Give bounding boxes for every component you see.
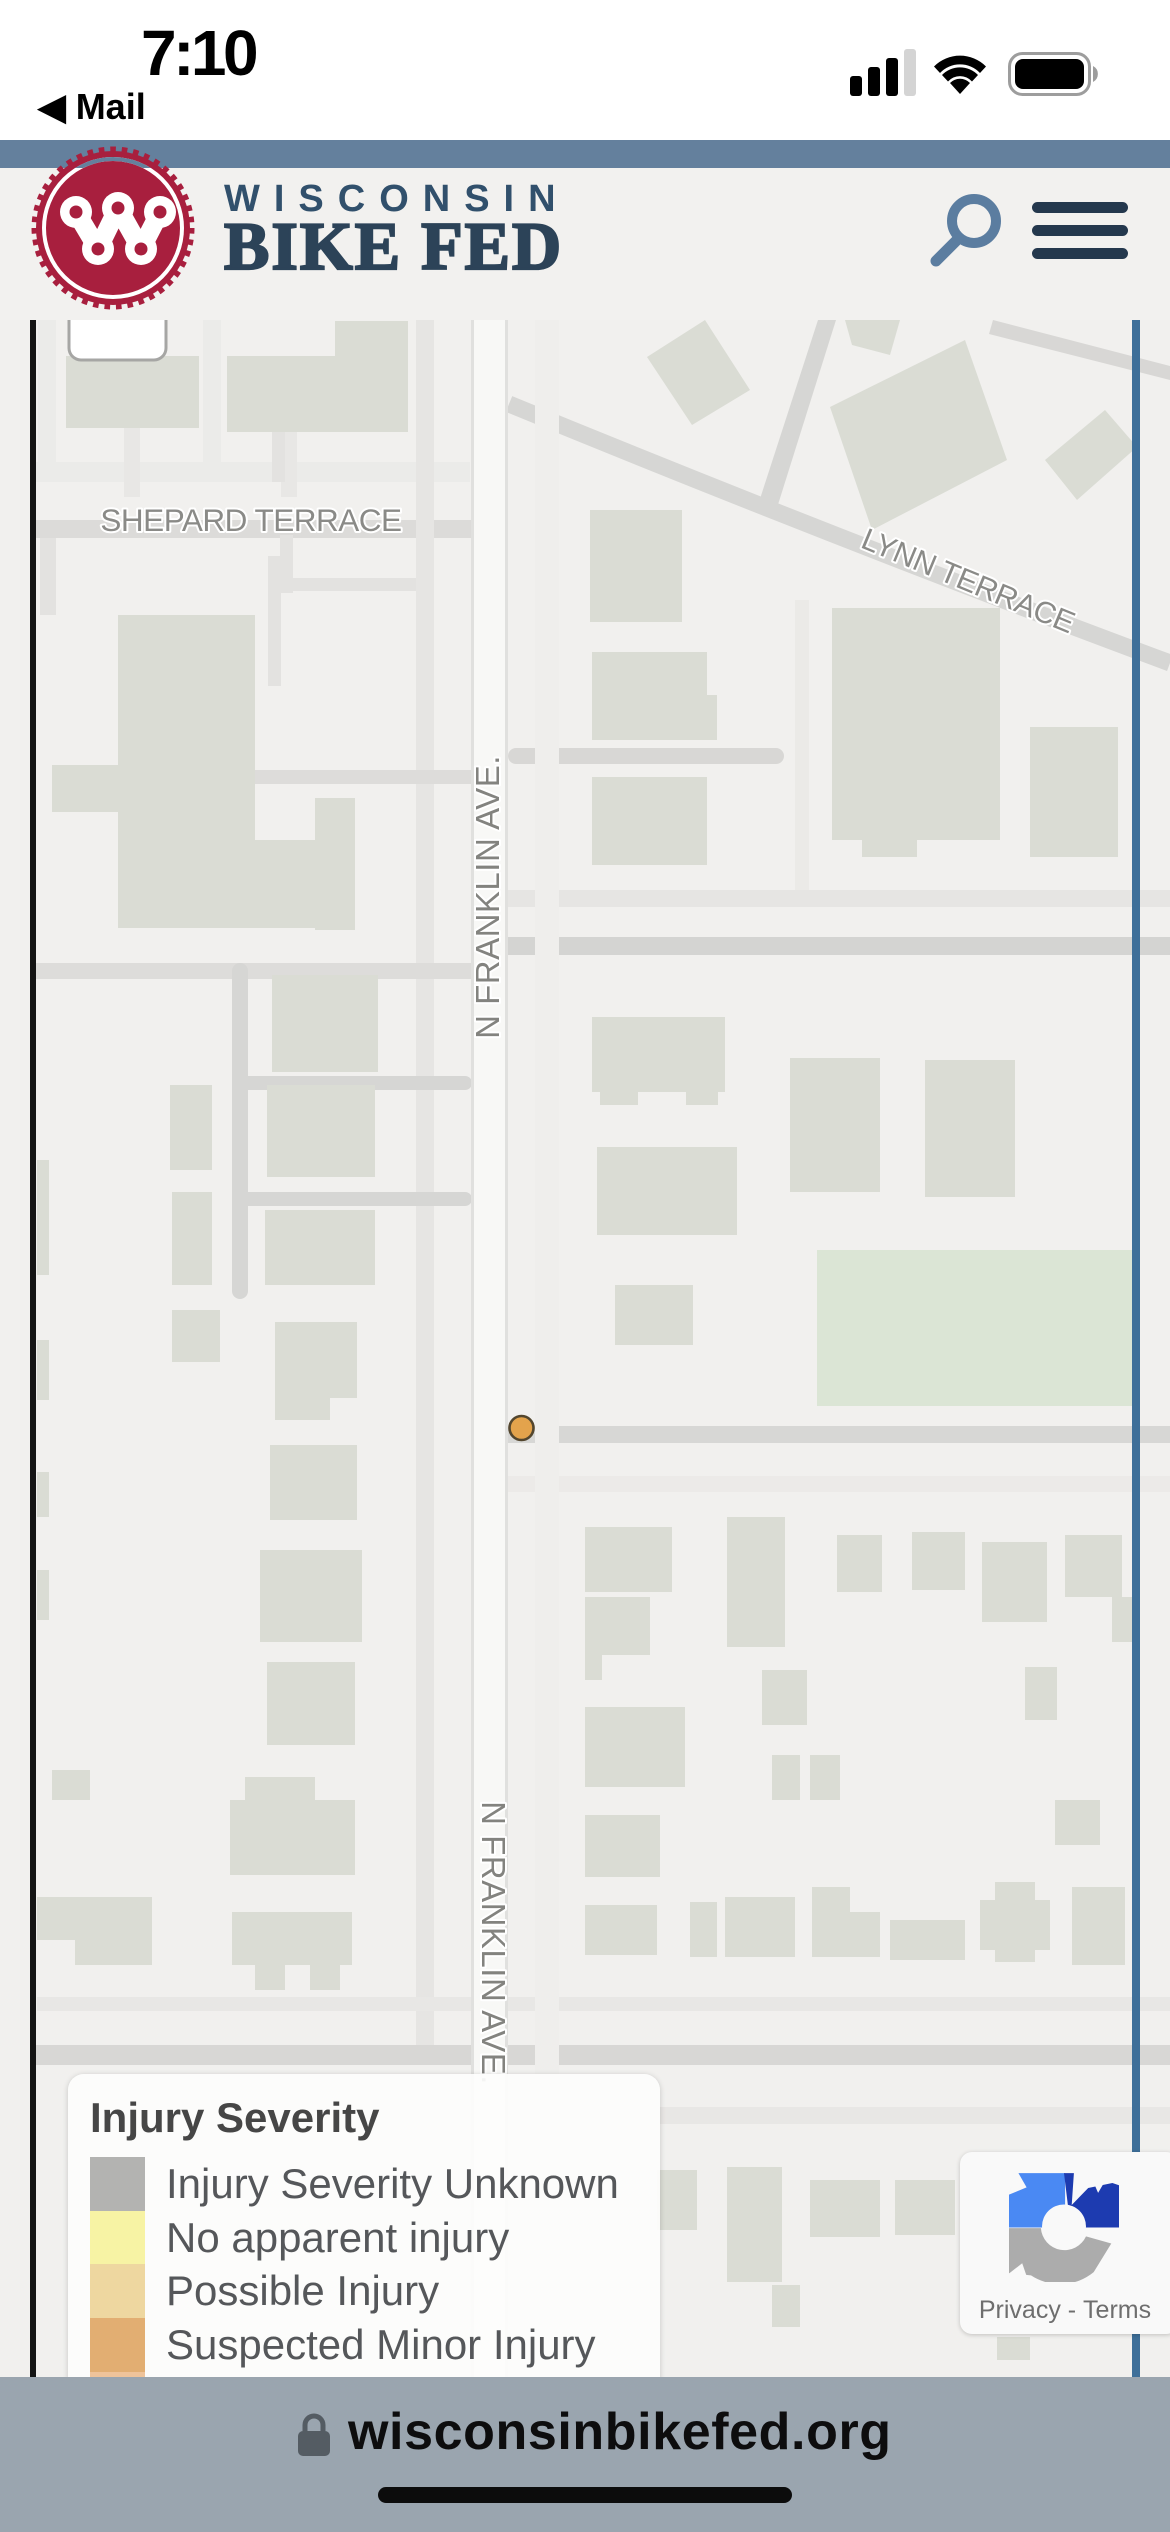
- svg-text:SHEPARD TERRACE: SHEPARD TERRACE: [100, 502, 401, 538]
- svg-text:N FRANKLIN AVE.: N FRANKLIN AVE.: [469, 755, 506, 1039]
- svg-text:N FRANKLIN AVE.: N FRANKLIN AVE.: [475, 1801, 512, 2085]
